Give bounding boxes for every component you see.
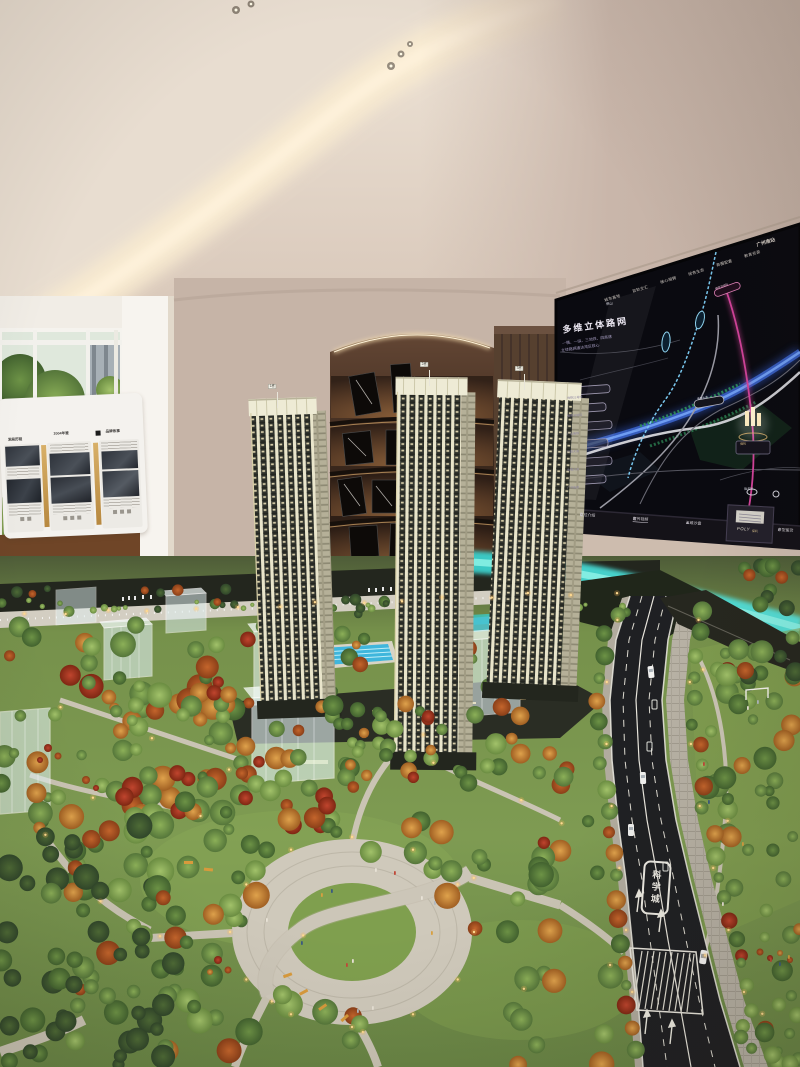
exhibit-logo-mark: [95, 431, 100, 436]
screen-logo-sub: 保利: [752, 530, 758, 534]
road-name-marking: 科学城: [640, 860, 672, 916]
tower-3-tag: 3栋: [515, 366, 523, 371]
exhibit-panel3-header: 品牌故事: [105, 428, 120, 434]
exhibit-panel1-header: 发展历程: [8, 436, 23, 442]
showroom-photo: 多维立体路网 一横、一纵、三地铁、四高速 立体路网通达湾区核心 城市高地 双轨交…: [0, 0, 800, 1067]
exhibit-panel: [99, 439, 143, 529]
tower-2-stem: [429, 370, 430, 386]
sandtable-icon: [686, 521, 690, 525]
pin-icon: [580, 513, 584, 517]
exhibit-panel: [4, 443, 44, 532]
exhibit-panel2-header: 2004年鉴: [53, 430, 68, 436]
tower-1-tag: 1栋: [268, 384, 276, 389]
tower-1-stem: [277, 392, 278, 408]
exhibition-board: 发展历程 2004年鉴 品牌故事: [0, 393, 148, 539]
tower-3: [482, 379, 592, 702]
map-label-station: 镇龙站: [744, 487, 753, 491]
video-icon: [633, 517, 637, 521]
tower-3-stem: [524, 374, 525, 390]
screen-logo-text: POLY: [737, 527, 750, 532]
compass-icon: [778, 528, 782, 532]
tower-2-tag: 2栋: [420, 362, 428, 367]
screen-menu-video: 宣传视频: [633, 517, 649, 523]
map-label-project: 保利: [740, 443, 746, 447]
exhibit-panel: [47, 441, 95, 531]
